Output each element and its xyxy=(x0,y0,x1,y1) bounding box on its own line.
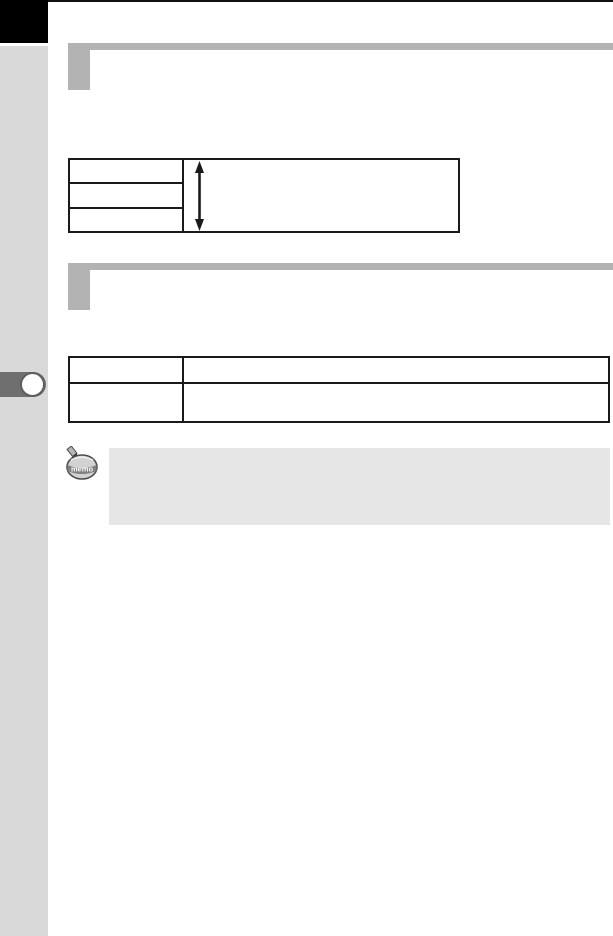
section-title-2 xyxy=(96,272,596,302)
chapter-tab xyxy=(0,0,48,43)
section-header-bar-1 xyxy=(68,43,613,50)
info-table-value-cell xyxy=(184,384,608,421)
page-top-rule xyxy=(0,0,613,2)
chapter-marker-tab xyxy=(0,372,46,397)
chapter-marker-dot-icon xyxy=(20,372,45,397)
memo-note-box xyxy=(109,448,610,525)
table-row xyxy=(70,358,608,384)
table-row xyxy=(70,384,608,421)
table-row xyxy=(70,160,182,182)
section-title-1 xyxy=(96,52,596,82)
table-row xyxy=(70,207,182,231)
info-table xyxy=(68,356,610,423)
section-header-accent-1 xyxy=(68,43,90,90)
memo-icon-label: memo xyxy=(71,465,94,474)
info-table-label-cell xyxy=(70,384,184,421)
range-table-label-column xyxy=(70,160,184,231)
memo-icon: memo xyxy=(62,446,102,487)
info-table-label-cell xyxy=(70,358,184,382)
info-table-value-cell xyxy=(184,358,608,382)
section-header-bar-2 xyxy=(68,263,613,270)
table-row xyxy=(70,182,182,206)
section-header-accent-2 xyxy=(68,263,90,310)
range-table xyxy=(68,158,460,233)
vertical-double-arrow-icon xyxy=(192,161,207,236)
sidebar xyxy=(0,46,48,936)
range-table-value-cell xyxy=(184,160,458,231)
